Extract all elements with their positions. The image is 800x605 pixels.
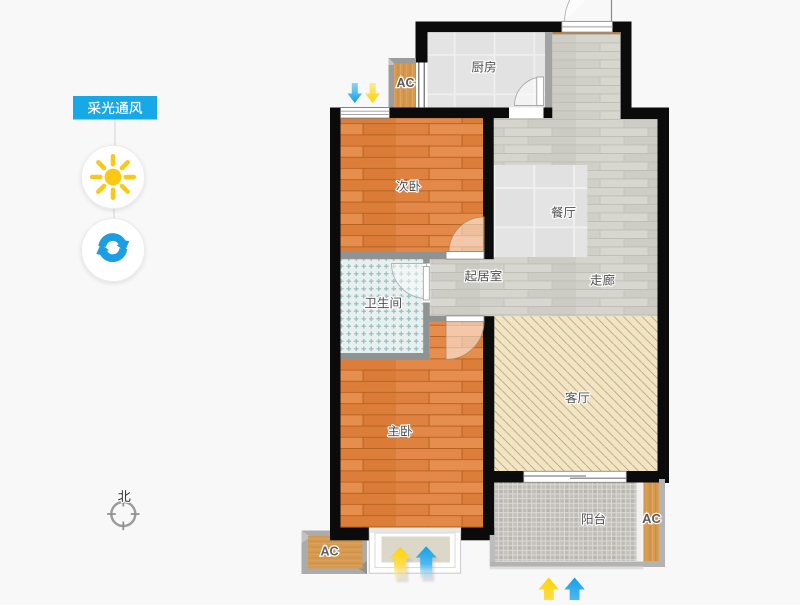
svg-text:AC: AC xyxy=(396,76,414,90)
svg-text:AC: AC xyxy=(642,511,661,526)
svg-text:AC: AC xyxy=(320,545,338,559)
